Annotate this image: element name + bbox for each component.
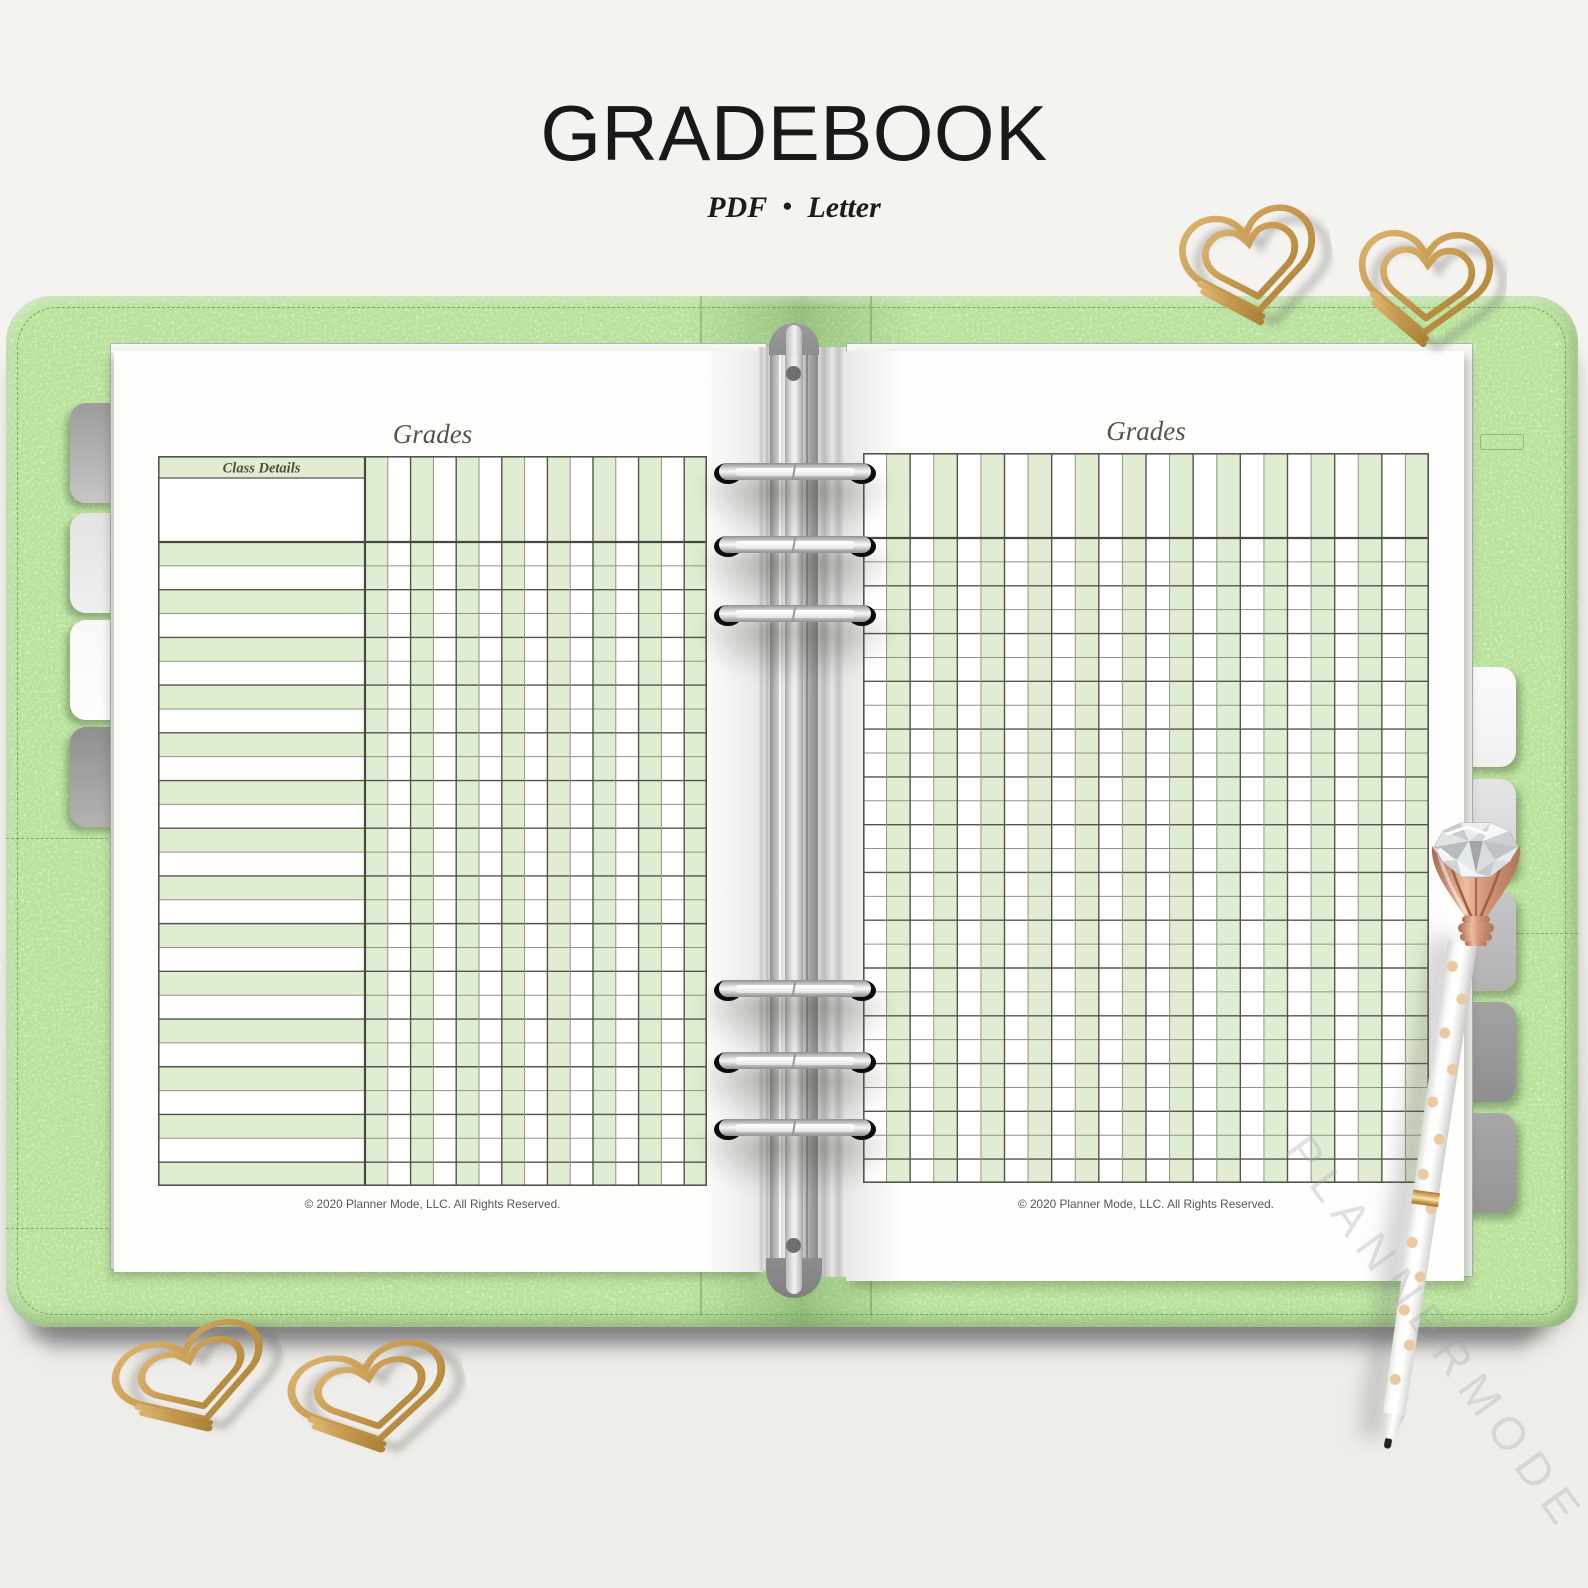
svg-text:Class Details: Class Details <box>223 461 301 477</box>
